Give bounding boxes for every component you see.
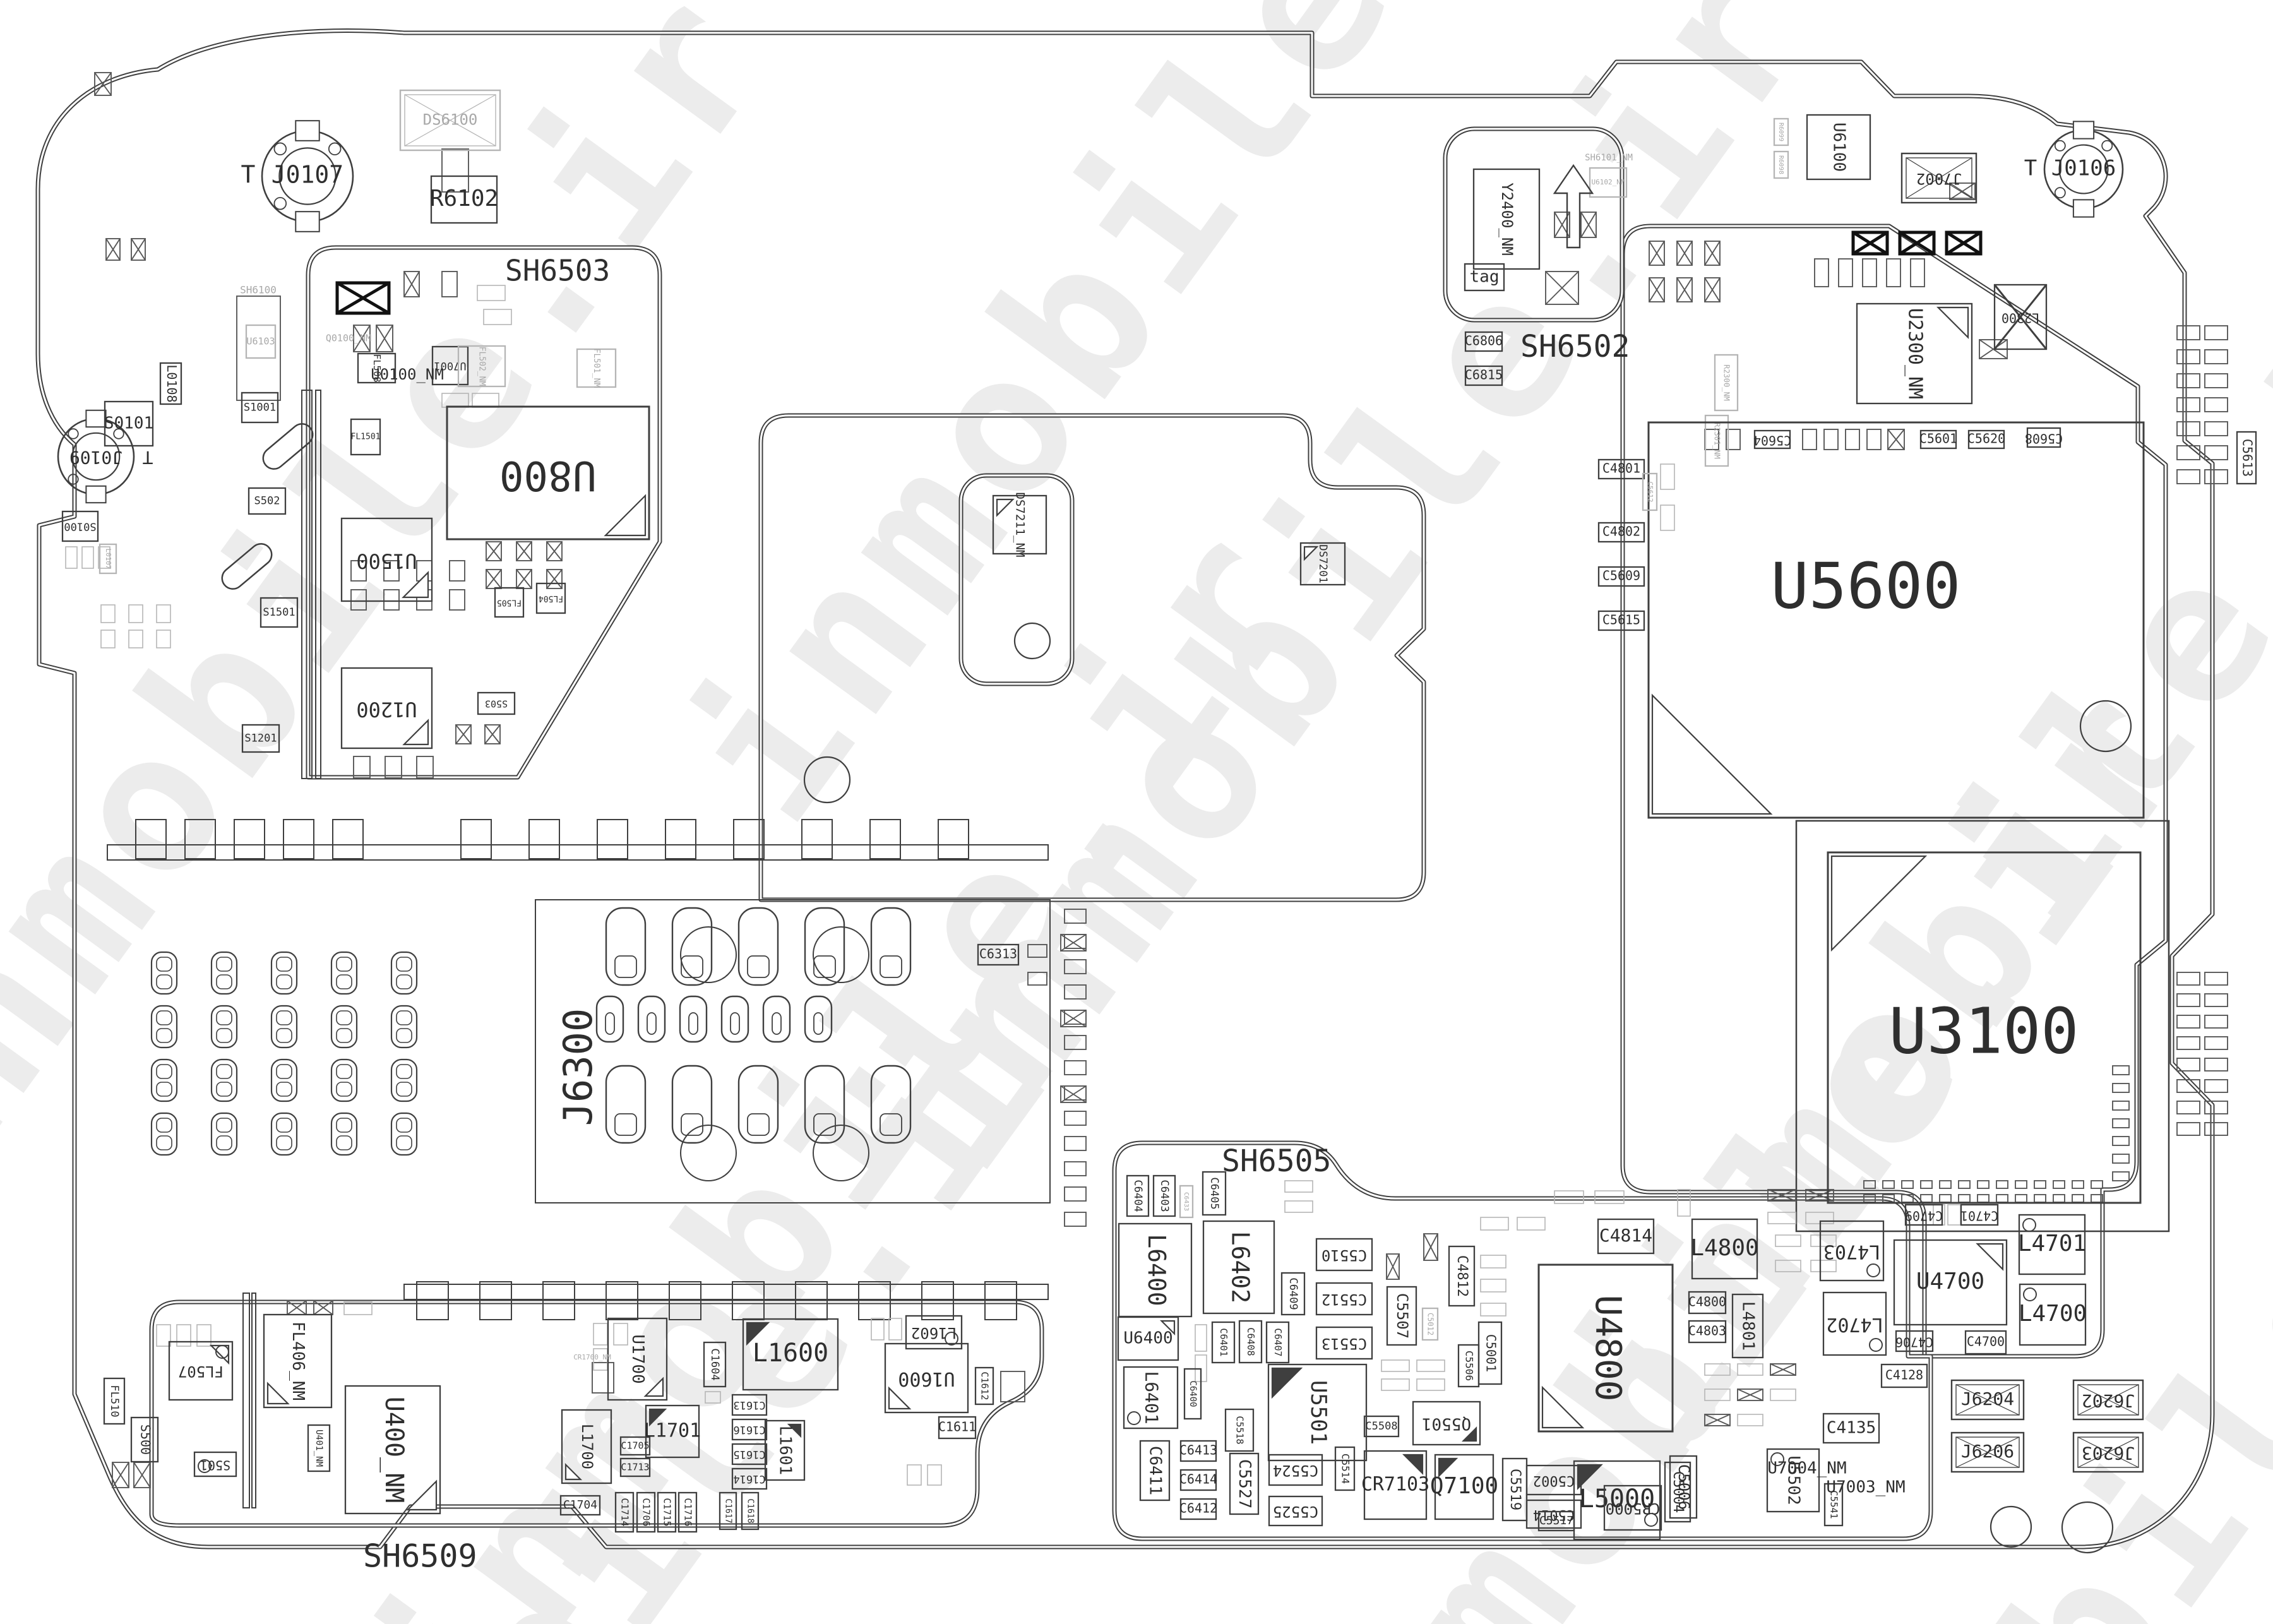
component-C5508: C5508 <box>1364 1416 1399 1436</box>
pin1-triangle <box>606 496 645 535</box>
passive <box>928 1465 941 1485</box>
component-U401_NM: U401_NM <box>308 1425 330 1471</box>
U5600-label: U5600 <box>1770 549 1960 623</box>
C6404-label: C6404 <box>1131 1179 1144 1212</box>
C1616-label: C1616 <box>733 1423 765 1436</box>
L6401-label: L6401 <box>1142 1371 1162 1424</box>
sim-contact-pad <box>277 1065 292 1078</box>
sim-contact-pad <box>277 1011 292 1025</box>
passive <box>1481 1279 1506 1292</box>
S1001-label: S1001 <box>244 402 276 414</box>
sim-contact-pad <box>397 1082 412 1096</box>
j6300-contact <box>606 908 645 985</box>
component-J0107: J0107T <box>241 121 353 232</box>
shield-label-SH6505: SH6505 <box>1222 1143 1331 1179</box>
passive <box>2205 326 2228 340</box>
C1604-label: C1604 <box>708 1348 721 1380</box>
J6206-label: J6206 <box>1961 1441 2014 1462</box>
C5604-label: C5604 <box>1753 433 1791 448</box>
J6203-label: J6203 <box>2082 1443 2135 1464</box>
component-C1612: C1612 <box>975 1368 993 1404</box>
C6412-label: C6412 <box>1179 1501 1217 1516</box>
sim-contact-pad <box>397 975 412 989</box>
passive <box>2113 1101 2129 1110</box>
component-FL406_NM: FL406_NM <box>264 1315 331 1407</box>
ring-hole <box>2102 141 2112 151</box>
passive <box>2072 1195 2084 1202</box>
component-Q0100_NM: Q0100_NM <box>326 333 371 344</box>
passive <box>1417 1379 1445 1390</box>
sim-contact-pad <box>277 1136 292 1150</box>
component-DS6100: DS6100 <box>400 90 500 150</box>
component-L6401: L6401 <box>1124 1367 1178 1428</box>
t-mark: T <box>241 161 256 189</box>
sim-contact <box>212 1006 237 1048</box>
passive <box>1381 1379 1409 1390</box>
component-C6401: C6401 <box>1212 1322 1234 1363</box>
passive <box>1481 1255 1506 1268</box>
sim-finger <box>529 820 559 859</box>
C4706-label: C4706 <box>1895 1335 1933 1350</box>
S1501-label: S1501 <box>263 606 295 619</box>
ring-pad <box>2073 121 2094 138</box>
passive <box>2015 1181 2027 1188</box>
C5002-label: C5002 <box>1533 1472 1575 1488</box>
sim-contact <box>391 1113 417 1155</box>
sim-contact-pad <box>277 957 292 971</box>
j6300-contact-tip <box>681 956 703 977</box>
passive <box>2015 1195 2027 1202</box>
L2300-label: L2300 <box>2002 311 2039 326</box>
C1615-label: C1615 <box>733 1448 765 1460</box>
board-svg: inmobile.irinmobile.irinmobile.irinmobil… <box>0 0 2273 1624</box>
component-C6414: C6414 <box>1179 1470 1217 1490</box>
component-U6100: U6100 <box>1807 115 1870 179</box>
j6300-contact <box>672 908 712 985</box>
sim-contact-pad <box>157 1011 172 1025</box>
pin1-triangle <box>1404 1455 1423 1473</box>
component-C6412: C6412 <box>1179 1499 1217 1519</box>
j6300-contact <box>606 1066 645 1143</box>
component-SH6101_NM: SH6101_NM <box>1585 153 1633 163</box>
C6433-label: C6433 <box>1183 1192 1190 1211</box>
sim-contact-pad <box>397 1029 412 1042</box>
component-C6403: C6403 <box>1154 1176 1175 1216</box>
sim-contact-pad <box>157 1136 172 1150</box>
J7002-label: J7002 <box>1916 170 1962 188</box>
FL510-label: FL510 <box>108 1385 121 1417</box>
j6300-hole <box>681 927 736 982</box>
shield-label-SH6509: SH6509 <box>363 1538 477 1575</box>
CR7103-label: CR7103 <box>1361 1474 1429 1496</box>
j6300-contact-tip <box>615 956 636 977</box>
component-C4812: C4812 <box>1449 1246 1474 1306</box>
U401_NM-label: U401_NM <box>314 1430 324 1467</box>
C6413-label: C6413 <box>1179 1443 1217 1458</box>
C6806-label: C6806 <box>1465 333 1503 349</box>
component-U6103: U6103 <box>246 325 275 358</box>
sim-contact <box>152 1113 177 1155</box>
C4803-label: C4803 <box>1688 1323 1726 1339</box>
j6300-contact-small-tip <box>731 1013 739 1034</box>
component-C6407: C6407 <box>1267 1322 1289 1363</box>
C1611-label: C1611 <box>938 1419 976 1435</box>
watermark-text: inmobile.ir <box>0 0 818 1239</box>
C4801-label: C4801 <box>1602 461 1640 476</box>
sim-contact-pad <box>217 1029 232 1042</box>
C4709-label: C4709 <box>1905 1209 1943 1224</box>
FL406_NM-label: FL406_NM <box>289 1322 307 1400</box>
passive <box>1065 1162 1086 1176</box>
sim-contact-pad <box>217 1011 232 1025</box>
passive <box>101 605 115 623</box>
sim-contact-pad <box>397 1136 412 1150</box>
S503-label: S503 <box>485 698 508 710</box>
R6102-label: R6102 <box>430 186 498 212</box>
C5608-label: C5608 <box>2025 431 2063 446</box>
component-C6408: C6408 <box>1239 1321 1262 1363</box>
sim-contact-pad <box>277 975 292 989</box>
FL501_NM-label: FL501_NM <box>592 349 601 388</box>
pin1-circle <box>1870 1339 1882 1351</box>
pin1-triangle <box>408 1481 436 1510</box>
sim-contact-pad <box>337 1118 352 1132</box>
R6098-label: R6098 <box>1777 155 1784 174</box>
component-U4700: U4700 <box>1894 1240 2007 1325</box>
component-C6413: C6413 <box>1179 1441 1217 1461</box>
board-hole <box>1991 1507 2031 1547</box>
passive <box>1978 1181 1989 1188</box>
j6300-contact-tip <box>748 956 769 977</box>
passive <box>101 630 115 648</box>
pin1-triangle <box>1938 307 1968 337</box>
passive <box>2113 1154 2129 1163</box>
passive <box>354 756 370 778</box>
ring-hole <box>329 143 341 155</box>
passive <box>1863 259 1876 287</box>
Y2400_NM-label: Y2400_NM <box>1498 182 1516 256</box>
C5519-label: C5519 <box>1507 1469 1523 1510</box>
C5508-label: C5508 <box>1365 1420 1397 1433</box>
sim-contact <box>271 1113 297 1155</box>
L6402-label: L6402 <box>1227 1231 1255 1303</box>
sim-contact <box>152 1006 177 1048</box>
L0107-label: L0107 <box>104 548 112 569</box>
sim-contact-pad <box>277 1029 292 1042</box>
passive <box>2113 1119 2129 1128</box>
component-C5524: C5524 <box>1269 1455 1322 1485</box>
component-J6204: J6204 <box>1952 1380 2024 1419</box>
j6300-contact-tip <box>615 1114 636 1135</box>
C6403-label: C6403 <box>1158 1179 1171 1212</box>
FL507-label: FL507 <box>178 1363 224 1380</box>
C5609-label: C5609 <box>1602 568 1640 583</box>
sim-finger <box>665 820 696 859</box>
sim-contact-pad <box>277 1118 292 1132</box>
sim-contact-pad <box>397 957 412 971</box>
ring-hole <box>68 429 78 439</box>
passive <box>1065 1212 1086 1226</box>
C5507-label: C5507 <box>1393 1293 1411 1339</box>
passive <box>2177 422 2200 436</box>
component-C6411: C6411 <box>1140 1441 1169 1500</box>
sim-contact-pad <box>217 1082 232 1096</box>
R6099-label: R6099 <box>1777 122 1784 141</box>
passive <box>2177 326 2200 340</box>
C6411-label: C6411 <box>1146 1446 1165 1495</box>
FL1501-label: FL1501 <box>351 433 381 442</box>
C4812-label: C4812 <box>1454 1255 1470 1297</box>
component-U5501: U5501 <box>1268 1364 1366 1460</box>
passive <box>2053 1181 2065 1188</box>
sim-contact-pad <box>217 1118 232 1132</box>
U4700-label: U4700 <box>1916 1269 1984 1294</box>
S0100-label: S0100 <box>64 520 96 533</box>
board-hole <box>1015 623 1050 659</box>
passive <box>2072 1181 2084 1188</box>
component-C5001: C5001 <box>1479 1322 1501 1384</box>
passive <box>157 1325 170 1346</box>
component-C5527: C5527 <box>1230 1454 1258 1514</box>
C5006-label: C5006 <box>1675 1464 1693 1510</box>
sim-contact <box>271 1006 297 1048</box>
j6300-contact-small-tip <box>606 1013 614 1034</box>
C1612-label: C1612 <box>979 1371 991 1400</box>
component-C5601: C5601 <box>1919 431 1957 448</box>
C6400-label: C6400 <box>1188 1380 1198 1407</box>
passive <box>129 605 143 623</box>
passive <box>2205 972 2228 985</box>
S1201-label: S1201 <box>244 732 277 745</box>
U1700-label: U1700 <box>628 1334 647 1383</box>
L0108-label: L0108 <box>164 364 179 402</box>
L1701-label: L1701 <box>644 1420 701 1442</box>
component-S501: S501 <box>194 1452 236 1476</box>
L1700-label: L1700 <box>578 1424 596 1469</box>
U1500-label: U1500 <box>356 549 417 573</box>
passive <box>2177 350 2200 364</box>
SH6100-label: SH6100 <box>240 284 277 296</box>
C5620-label: C5620 <box>1967 431 2005 446</box>
sim-contact-pad <box>337 1136 352 1150</box>
C1618-label: C1618 <box>746 1498 755 1523</box>
component-C5012: C5012 <box>1423 1308 1438 1340</box>
sim-finger <box>461 820 491 859</box>
C1713-label: C1713 <box>621 1462 649 1473</box>
ring-hole <box>2055 188 2065 198</box>
j6300-contact-small <box>722 996 748 1042</box>
component-SH6100: SH6100 <box>240 284 277 296</box>
passive <box>2177 374 2200 388</box>
component-C5507: C5507 <box>1387 1287 1416 1345</box>
component-C5604: C5604 <box>1753 431 1791 448</box>
C4701-label: C4701 <box>1960 1209 1998 1224</box>
component-Q5501: Q5501 <box>1413 1402 1480 1445</box>
J6204-label: J6204 <box>1961 1388 2014 1409</box>
component-J6206: J6206 <box>1952 1433 2024 1472</box>
component-S503: S503 <box>478 693 515 714</box>
passive <box>2205 1015 2228 1028</box>
U800-label: U800 <box>499 451 597 498</box>
pin1-circle <box>2023 1219 2036 1231</box>
passive <box>2177 398 2200 412</box>
J0109-label: J0109 <box>69 447 122 468</box>
U2300_NM-label: U2300_NM <box>1904 308 1926 400</box>
passive <box>2205 1037 2228 1049</box>
passive <box>2205 350 2228 364</box>
C4814-label: C4814 <box>1599 1225 1652 1246</box>
passive <box>2205 1080 2228 1092</box>
passive <box>1285 1201 1313 1212</box>
passive <box>1846 429 1859 450</box>
C5615-label: C5615 <box>1602 612 1640 628</box>
component-C5506: C5506 <box>1459 1345 1479 1387</box>
passive <box>2205 374 2228 388</box>
component-C4701: C4701 <box>1960 1205 1998 1225</box>
sim-finger <box>597 820 628 859</box>
passive <box>1940 1195 1951 1202</box>
L4703-label: L4703 <box>1823 1241 1880 1263</box>
L4800-label: L4800 <box>1690 1235 1758 1261</box>
C5601-label: C5601 <box>1919 431 1957 446</box>
R2300_NM-label: R2300_NM <box>1722 364 1731 401</box>
U4800-label: U4800 <box>1587 1295 1628 1402</box>
passive <box>2177 994 2200 1006</box>
passive <box>2205 1058 2228 1071</box>
t-mark: T <box>2024 156 2037 181</box>
sim-contact-pad <box>217 1136 232 1150</box>
component-U2300_NM: U2300_NM <box>1857 304 1972 403</box>
C1614-label: C1614 <box>733 1472 765 1485</box>
passive <box>2177 972 2200 985</box>
shield-label-SH6502: SH6502 <box>1520 329 1630 364</box>
S0101-label: S0101 <box>104 414 153 433</box>
component-C5608: C5608 <box>2025 428 2063 447</box>
passive <box>2205 1123 2228 1135</box>
C5514-label: C5514 <box>1340 1454 1352 1484</box>
passive <box>417 756 433 778</box>
passive <box>1285 1181 1313 1192</box>
component-C6409: C6409 <box>1282 1273 1304 1315</box>
sim-contact-pad <box>337 1065 352 1078</box>
C5612-label: C5612 <box>1646 481 1654 502</box>
C5525-label: C5525 <box>1273 1503 1318 1520</box>
C6401-label: C6401 <box>1218 1328 1229 1356</box>
S500-label: S500 <box>138 1424 153 1455</box>
passive <box>1381 1360 1409 1371</box>
j6300-contact-small-tip <box>689 1013 698 1034</box>
component-L4700: L4700 <box>2019 1284 2087 1345</box>
passive <box>1996 1181 2008 1188</box>
pin1-circle <box>1128 1412 1140 1424</box>
CR5000-label: CR5000 <box>1606 1500 1661 1517</box>
U5501-label: U5501 <box>1306 1380 1331 1445</box>
passive <box>1481 1303 1506 1316</box>
rail <box>252 1293 256 1508</box>
C6409-label: C6409 <box>1287 1277 1299 1310</box>
component-U400_NM: U400_NM <box>345 1386 440 1514</box>
U1200-label: U1200 <box>356 698 417 722</box>
Q7100-label: Q7100 <box>1430 1473 1498 1499</box>
L1602-label: L1602 <box>911 1324 957 1342</box>
component-L2300: L2300 <box>1995 285 2046 349</box>
C1714-label: C1714 <box>619 1498 631 1526</box>
ring-hole <box>274 143 286 155</box>
component-FL507: FL507 <box>169 1342 232 1400</box>
component-L6402: L6402 <box>1203 1221 1274 1313</box>
U3100-label: U3100 <box>1888 994 2079 1068</box>
passive <box>907 1465 921 1485</box>
sim-contact-pad <box>397 1011 412 1025</box>
sim-contact-pad <box>157 1082 172 1096</box>
pin1-circle <box>2024 1288 2036 1301</box>
passive <box>2177 1037 2200 1049</box>
L6400-label: L6400 <box>1143 1234 1171 1306</box>
L1601-label: L1601 <box>776 1426 795 1475</box>
passive <box>1065 1187 1086 1201</box>
FL508-label: FL508 <box>371 354 383 382</box>
component-C4135: C4135 <box>1823 1414 1879 1443</box>
component-U7004_NM: U7004_NM <box>1767 1459 1846 1478</box>
component-L0108: L0108 <box>160 363 181 404</box>
sim-contact <box>271 952 297 994</box>
sim-contact-pad <box>157 1029 172 1042</box>
sim-contact <box>331 952 357 994</box>
component-J6300: J6300 <box>555 1008 601 1126</box>
L1600-label: L1600 <box>753 1339 828 1368</box>
passive <box>197 1325 211 1346</box>
FL505-label: FL505 <box>497 598 522 607</box>
sim-contact-pad <box>397 1118 412 1132</box>
j6300-contact-small <box>680 996 707 1042</box>
R2301_NM-label: R2301_NM <box>1713 422 1722 459</box>
component-CR1700_NM: CR1700_NM <box>573 1353 611 1361</box>
DS7201-label: DS7201 <box>1316 544 1329 583</box>
sim-contact-pad <box>397 1065 412 1078</box>
sim-contact-pad <box>157 1065 172 1078</box>
sim-contact <box>391 1060 417 1101</box>
component-S500: S500 <box>131 1418 158 1462</box>
CR1700_NM-label: CR1700_NM <box>573 1353 611 1361</box>
sim-contact-pad <box>217 975 232 989</box>
C6414-label: C6414 <box>1179 1472 1217 1487</box>
j6300-contact <box>739 908 778 985</box>
passive <box>1839 259 1852 287</box>
component-C5525: C5525 <box>1269 1496 1322 1525</box>
sim-finger <box>333 820 363 859</box>
C1613-label: C1613 <box>733 1399 765 1411</box>
passive <box>1065 1137 1086 1150</box>
passive <box>1867 429 1881 450</box>
pin1-triangle <box>1272 1368 1301 1397</box>
t-mark: T <box>142 447 153 468</box>
U400_NM-label: U400_NM <box>379 1397 409 1503</box>
passive <box>2177 1015 2200 1028</box>
component-U7003_NM: U7003_NM <box>1826 1478 1905 1497</box>
sim-contact-pad <box>337 1029 352 1042</box>
C1716-label: C1716 <box>683 1498 694 1526</box>
C6408-label: C6408 <box>1245 1327 1256 1356</box>
passive <box>177 1325 191 1346</box>
passive <box>1978 1195 1989 1202</box>
SH6101_NM-label: SH6101_NM <box>1585 153 1633 163</box>
component-C5514: C5514 <box>1335 1447 1354 1490</box>
passive <box>2113 1172 2129 1181</box>
component-L6400: L6400 <box>1119 1224 1191 1317</box>
C6815-label: C6815 <box>1465 367 1503 383</box>
component-C5512: C5512 <box>1316 1283 1372 1315</box>
component-U6400: U6400 <box>1118 1317 1178 1360</box>
